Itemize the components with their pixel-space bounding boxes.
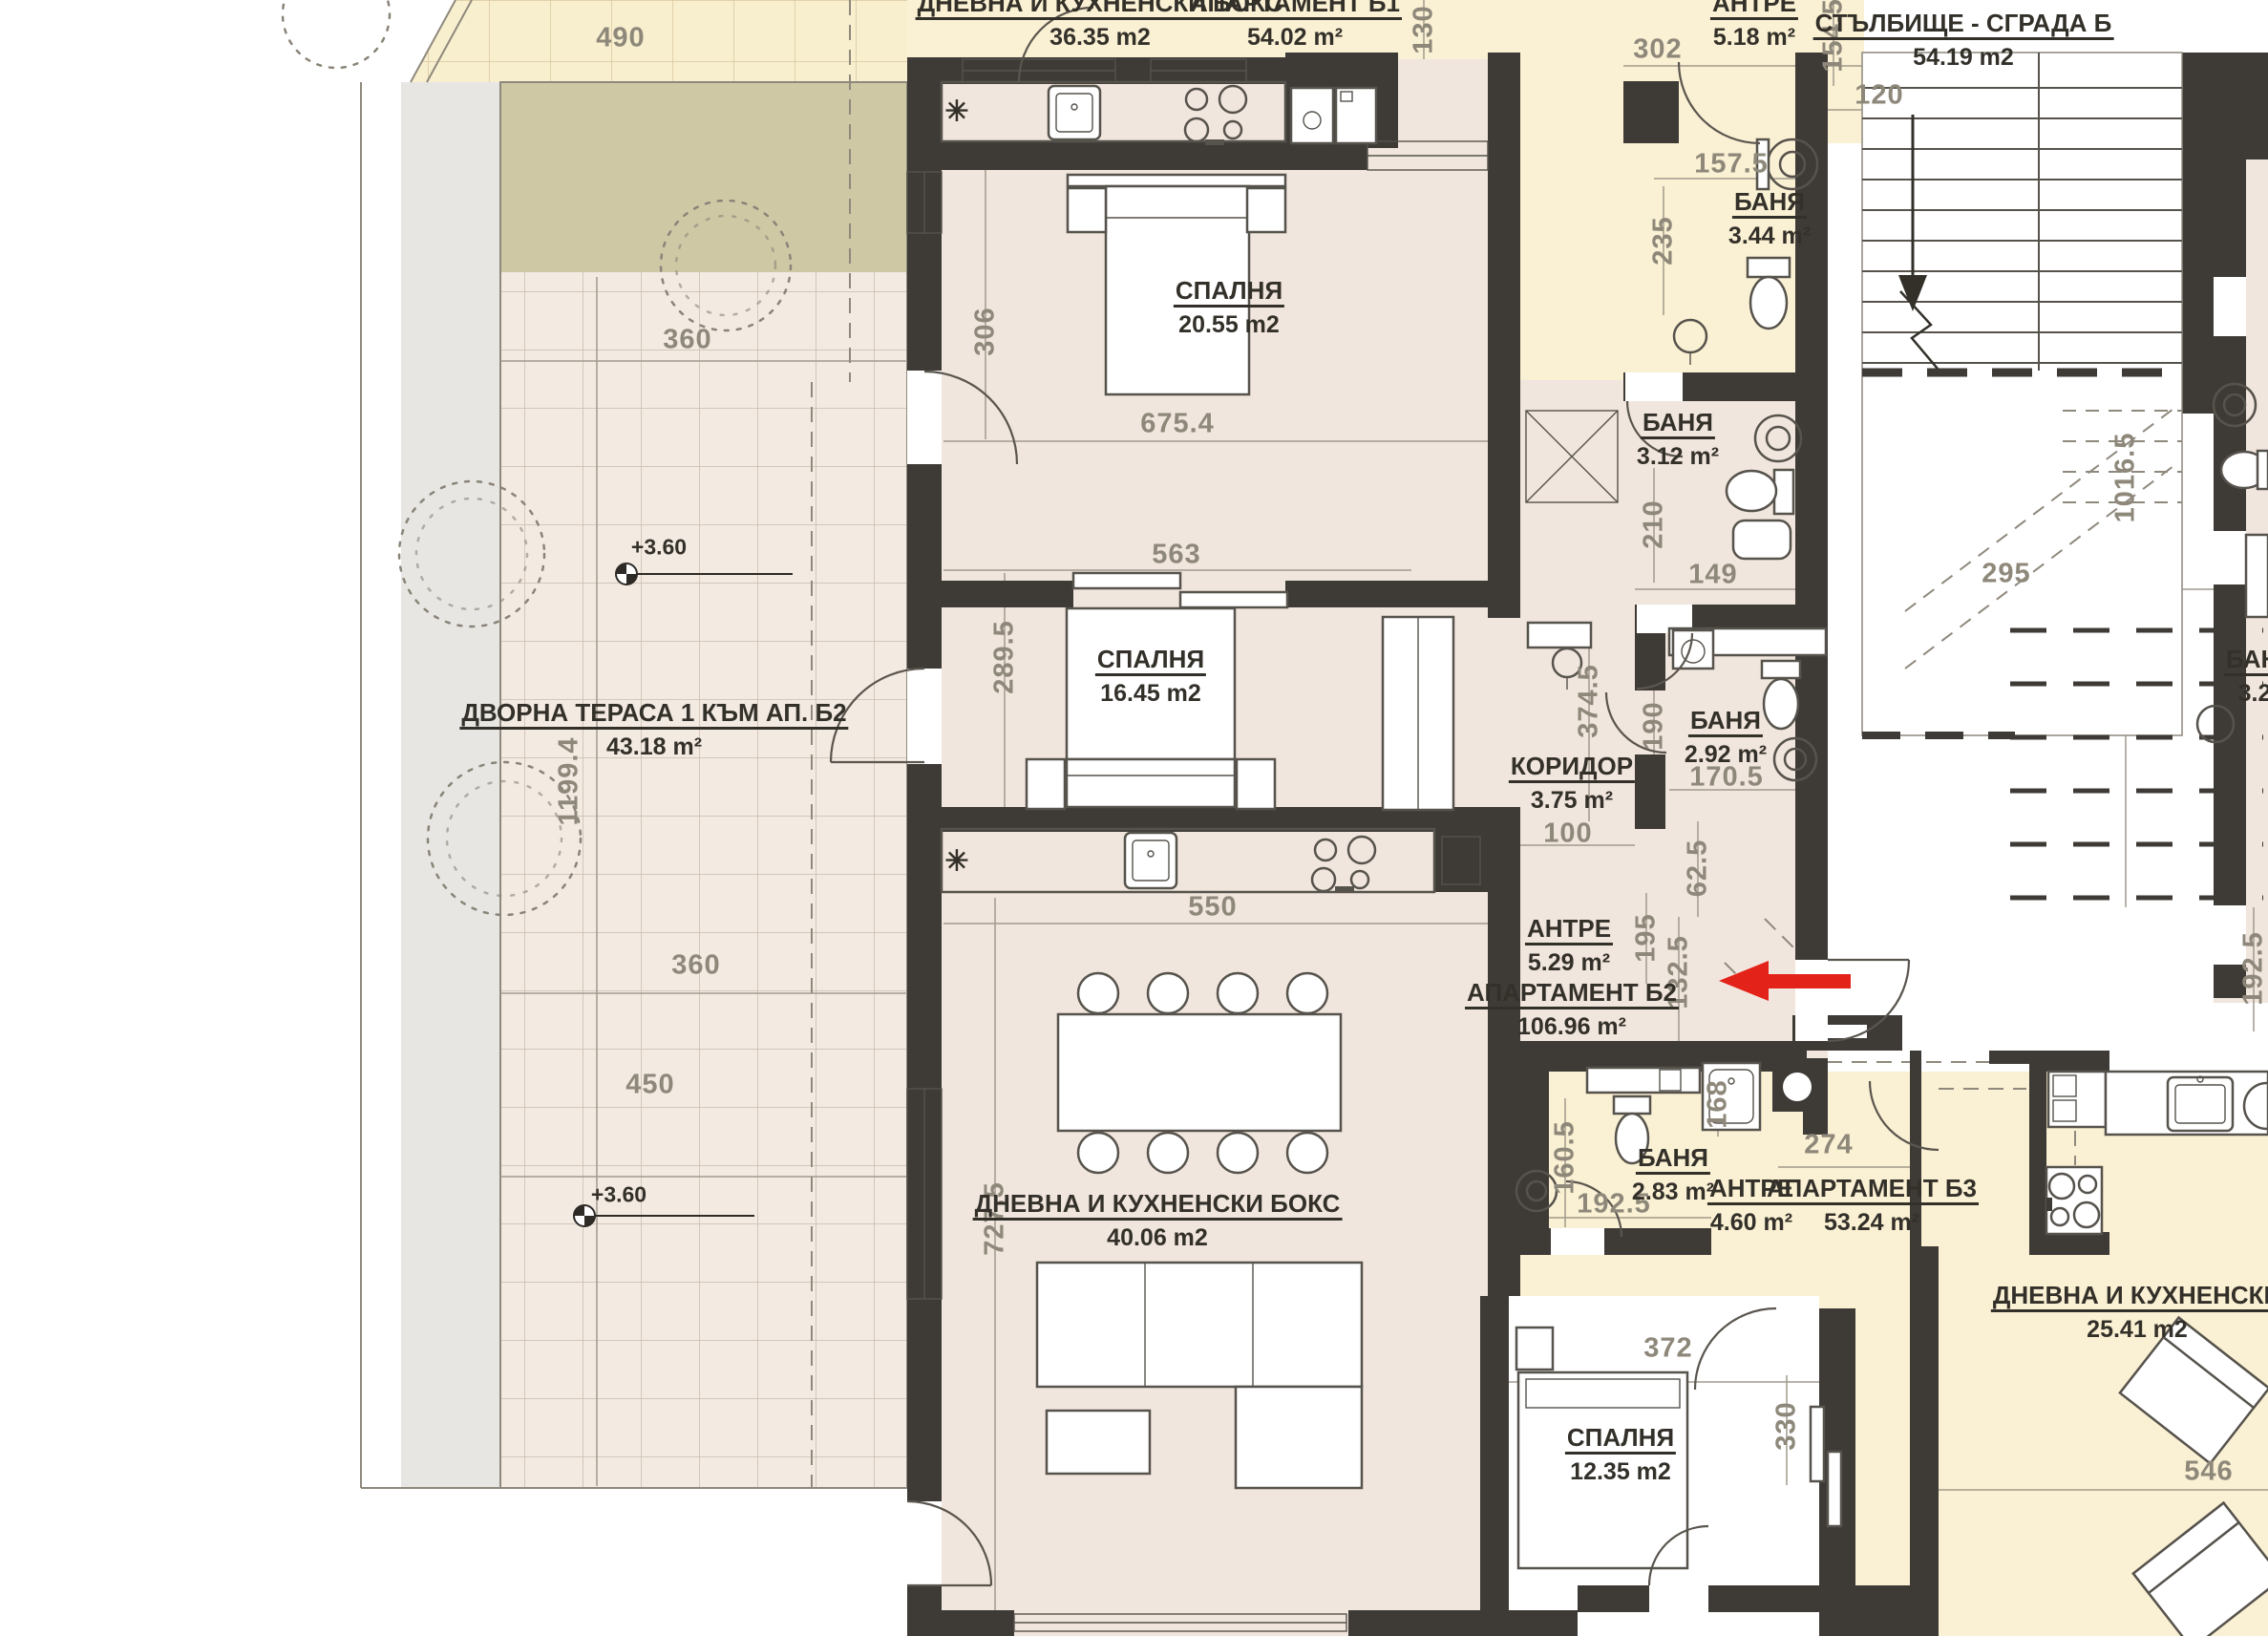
dimension: 675.4 [1140, 411, 1215, 438]
room-label-b3-bath: БАНЯ 2.83 m² [1632, 1145, 1714, 1204]
dimension: 360 [663, 327, 711, 354]
room-label-right-bath: БАНЯ 3.28 [2224, 647, 2268, 706]
radiator-icon: ✳ [944, 96, 968, 129]
dimension: 120 [1855, 82, 1903, 110]
labels-layer: ДНЕВНА И КУХНЕНСКИ БОКС 36.35 m2 АПАРТАМ… [0, 0, 2268, 1636]
dimension: 306 [972, 307, 1000, 355]
room-label-b2-apartment: АПАРТАМЕНТ Б2 106.96 m² [1465, 980, 1679, 1039]
dimension: 563 [1152, 542, 1200, 569]
dimension: 160.5 [1552, 1120, 1579, 1195]
dimension: 149 [1688, 562, 1737, 589]
dimension: 210 [1641, 499, 1668, 548]
dimension: 1016.5 [2112, 433, 2140, 523]
room-label-staircase: СТЪЛБИЩЕ - СГРАДА Б 54.19 m2 [1813, 11, 2114, 70]
dimension: 372 [1643, 1335, 1692, 1363]
dimension: 302 [1633, 36, 1682, 64]
level-value: +3.60 [631, 535, 687, 561]
dimension: 168 [1705, 1079, 1732, 1128]
room-label-terrace: ДВОРНА ТЕРАСА 1 КЪМ АП. Б2 43.18 m² [459, 700, 848, 759]
room-label-b2-bedroom1: СПАЛНЯ 20.55 m2 [1174, 278, 1284, 337]
room-label-b2-bath2: БАНЯ 2.92 m² [1685, 708, 1767, 767]
room-label-b1-apartment: АПАРТАМЕНТ Б1 54.02 m² [1188, 0, 1402, 50]
dimension: 190 [1641, 701, 1668, 750]
room-label-b2-bath1: БАНЯ 3.12 m² [1637, 410, 1719, 469]
dimension: 62.5 [1685, 839, 1712, 897]
dimension: 450 [625, 1072, 674, 1099]
room-label-b2-living: ДНЕВНА И КУХНЕНСКИ БОКС 40.06 m2 [973, 1191, 1343, 1250]
room-label-b2-corridor: КОРИДОР 3.75 m² [1509, 754, 1635, 813]
dimension: 374.5 [1576, 664, 1603, 738]
dimension: 235 [1650, 216, 1678, 265]
level-value: +3.60 [591, 1182, 646, 1208]
dimension: 360 [671, 952, 720, 980]
dimension: 195 [1633, 913, 1661, 962]
room-label-b3-living: ДНЕВНА И КУХНЕНСКИ 25.41 m2 [1991, 1283, 2268, 1342]
room-label-b3-bedroom: СПАЛНЯ 12.35 m2 [1565, 1425, 1676, 1484]
floor-plan: ДНЕВНА И КУХНЕНСКИ БОКС 36.35 m2 АПАРТАМ… [0, 0, 2268, 1636]
dimension: 274 [1804, 1132, 1853, 1159]
dimension: 550 [1188, 894, 1237, 922]
dimension: 330 [1773, 1401, 1801, 1450]
dimension: 289.5 [991, 620, 1019, 694]
room-label-b2-antre: АНТРЕ 5.29 m² [1525, 916, 1613, 975]
room-label-b1-bath: БАНЯ 3.44 m² [1728, 189, 1811, 248]
dimension: 490 [596, 25, 645, 53]
dimension: 546 [2184, 1458, 2233, 1486]
dimension: 157.5 [1694, 151, 1769, 179]
dimension: 295 [1982, 561, 2030, 588]
room-label-b3-apartment: АПАРТАМЕНТ Б3 53.24 m² [1765, 1176, 1979, 1235]
room-label-b2-bedroom2: СПАЛНЯ 16.45 m2 [1095, 647, 1206, 706]
dimension: 192.5 [2240, 931, 2268, 1006]
radiator-icon: ✳ [944, 845, 968, 879]
room-label-b1-antre: АНТРЕ 5.18 m² [1710, 0, 1798, 50]
dimension: 130 [1410, 5, 1438, 53]
dimension: 100 [1543, 820, 1592, 848]
